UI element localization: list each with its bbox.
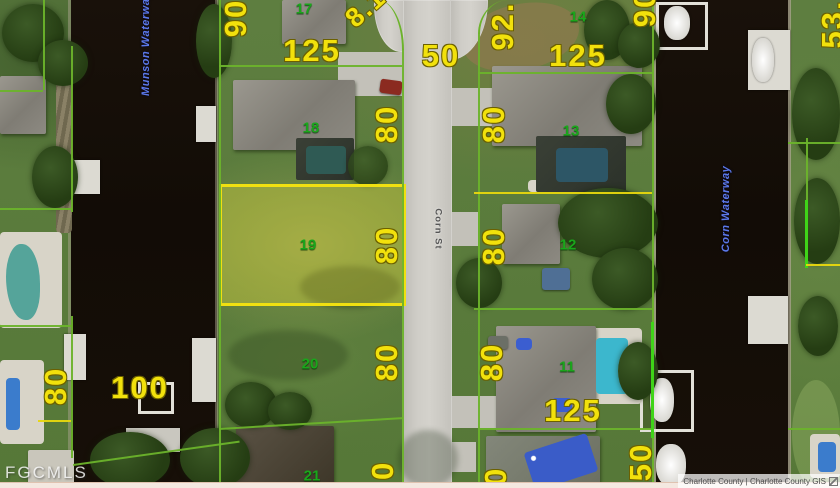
parcel-boundary-line bbox=[0, 90, 43, 92]
tree-shadow bbox=[398, 430, 458, 488]
swimming-pool bbox=[6, 378, 20, 430]
tree bbox=[592, 248, 658, 310]
lot-number-label: 17 bbox=[296, 1, 313, 18]
tree-shadow bbox=[228, 330, 348, 380]
parcel-boundary-line bbox=[788, 428, 840, 430]
roof-tarp bbox=[516, 338, 532, 350]
waterway-name-label: Munson Waterway bbox=[140, 0, 152, 96]
tree bbox=[348, 146, 388, 186]
lot-number-label: 11 bbox=[559, 359, 575, 376]
parcel-boundary-line bbox=[219, 0, 221, 488]
parcel-boundary-line-yellow bbox=[474, 192, 652, 194]
parked-car-blue bbox=[542, 268, 570, 290]
dimension-label: 80 bbox=[369, 105, 405, 143]
palm-tree bbox=[180, 428, 250, 488]
lot-number-label: 19 bbox=[300, 237, 317, 254]
parcel-boundary-line bbox=[651, 322, 654, 438]
swimming-pool bbox=[306, 146, 346, 174]
boat bbox=[664, 6, 690, 40]
boat-dock bbox=[748, 296, 788, 344]
swimming-pool bbox=[818, 442, 836, 472]
dimension-label: 125 bbox=[549, 38, 607, 74]
dimension-label: 80 bbox=[474, 343, 510, 381]
dimension-label: 125 bbox=[544, 393, 602, 429]
tree bbox=[792, 68, 840, 160]
parcel-boundary-line bbox=[0, 325, 71, 327]
mls-watermark: FGCMLS bbox=[5, 463, 88, 483]
parcel-boundary-line bbox=[0, 208, 71, 210]
dimension-label: 92. bbox=[485, 1, 521, 50]
dimension-label: 80 bbox=[476, 105, 512, 143]
dimension-label: 50 bbox=[623, 443, 659, 481]
attribution-text: Charlotte County | Charlotte County GIS bbox=[683, 477, 826, 486]
map-canvas[interactable]: 90 125 8.1 50 92. 125 90 53. 80 80 80 80… bbox=[0, 0, 840, 488]
dimension-label: 125 bbox=[283, 33, 341, 69]
dimension-label: 100 bbox=[111, 370, 169, 406]
tree bbox=[798, 296, 838, 356]
waterway-name-label: Corn Waterway bbox=[720, 166, 732, 252]
dimension-label: 80 bbox=[369, 343, 405, 381]
map-attribution: Charlotte County | Charlotte County GIS bbox=[678, 474, 840, 488]
boat-dock bbox=[196, 106, 216, 142]
driveway bbox=[452, 212, 478, 246]
parcel-boundary-line bbox=[71, 46, 73, 212]
tree bbox=[38, 40, 88, 86]
lot-number-label: 20 bbox=[302, 356, 319, 373]
attribution-expand-icon[interactable] bbox=[829, 477, 838, 486]
tree bbox=[794, 178, 840, 264]
boat-dock bbox=[192, 338, 216, 402]
dimension-label: 90 bbox=[218, 0, 254, 37]
driveway bbox=[452, 396, 498, 428]
tree bbox=[606, 74, 656, 134]
swimming-pool bbox=[556, 148, 608, 182]
dimension-label: 53. bbox=[815, 0, 840, 49]
dimension-label: 80 bbox=[476, 227, 512, 265]
parcel-boundary-line bbox=[43, 0, 45, 90]
lot-number-label: 13 bbox=[563, 123, 580, 140]
lot-number-label: 18 bbox=[303, 120, 320, 137]
dimension-label: 90 bbox=[627, 0, 663, 27]
parked-car-red bbox=[379, 79, 403, 96]
parcel-boundary-line bbox=[474, 308, 652, 310]
boat bbox=[752, 38, 774, 82]
dimension-label: 80 bbox=[369, 226, 405, 264]
parcel-boundary-line-yellow bbox=[38, 420, 71, 422]
dimension-label: 50 bbox=[422, 38, 460, 74]
parcel-boundary-line-yellow bbox=[806, 264, 840, 266]
lot-number-label: 12 bbox=[560, 237, 577, 254]
parcel-boundary-line bbox=[788, 142, 840, 144]
lot-number-label: 14 bbox=[570, 9, 587, 26]
parcel-boundary-line bbox=[805, 200, 808, 268]
street-name-label: Corn St bbox=[433, 208, 444, 249]
dimension-label: 80 bbox=[38, 367, 74, 405]
house-roof bbox=[0, 76, 46, 134]
